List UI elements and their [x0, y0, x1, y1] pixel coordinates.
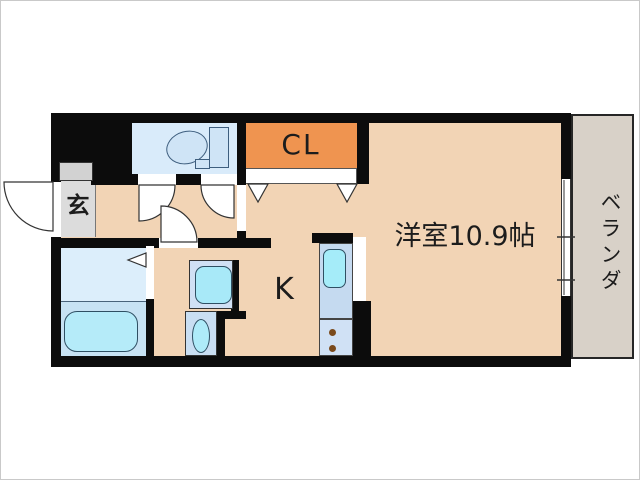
- wall-left-lower: [51, 237, 61, 367]
- toilet-door-opening: [138, 174, 176, 185]
- wall-right-upper: [561, 113, 571, 179]
- toilet-paper-holder: [195, 159, 210, 169]
- bathroom-floor: [59, 246, 146, 301]
- veranda-label: ベランダ: [587, 178, 621, 308]
- washing-machine-inner: [195, 266, 232, 304]
- toilet-tank: [209, 127, 229, 168]
- wall-hall-top-a: [91, 174, 139, 185]
- washbasin-icon: [192, 319, 210, 353]
- hall-door-opening-v: [237, 185, 246, 231]
- shoe-cabinet: [59, 162, 93, 181]
- wall-bath-right: [146, 299, 154, 356]
- wall-hall-bottom-a: [51, 238, 159, 248]
- kitchen-counter-lower: [319, 319, 353, 356]
- entrance-door-arc-icon: [4, 182, 53, 231]
- hall-door-opening-h: [201, 174, 237, 185]
- washroom-door-opening: [159, 238, 198, 248]
- entrance-label: 玄: [59, 194, 97, 218]
- wall-counter-right: [353, 301, 371, 356]
- kitchen-label: K: [259, 274, 309, 306]
- floor-plan-image: 玄 CL 洋室10.9帖 K ベランダ: [0, 0, 640, 480]
- western-room-label: 洋室10.9帖: [363, 223, 567, 251]
- bathroom-door-opening: [146, 246, 154, 299]
- wall-sink-right: [217, 311, 225, 356]
- wall-counter-head: [312, 233, 353, 243]
- wall-sink-step: [225, 311, 246, 319]
- wall-right-lower: [561, 296, 571, 367]
- stove-burner-dot-1: [329, 329, 336, 336]
- bathtub-icon: [64, 311, 138, 352]
- wall-closet-right: [357, 113, 369, 184]
- kitchen-sink-icon: [323, 249, 346, 288]
- wall-hall-bottom-b: [198, 238, 271, 248]
- wall-bottom: [51, 356, 571, 367]
- stove-burner-dot-2: [329, 345, 336, 352]
- closet-label: CL: [245, 130, 357, 159]
- wall-top: [51, 113, 571, 123]
- wall-hall-top-b: [176, 174, 201, 185]
- closet-door-track: [245, 168, 357, 184]
